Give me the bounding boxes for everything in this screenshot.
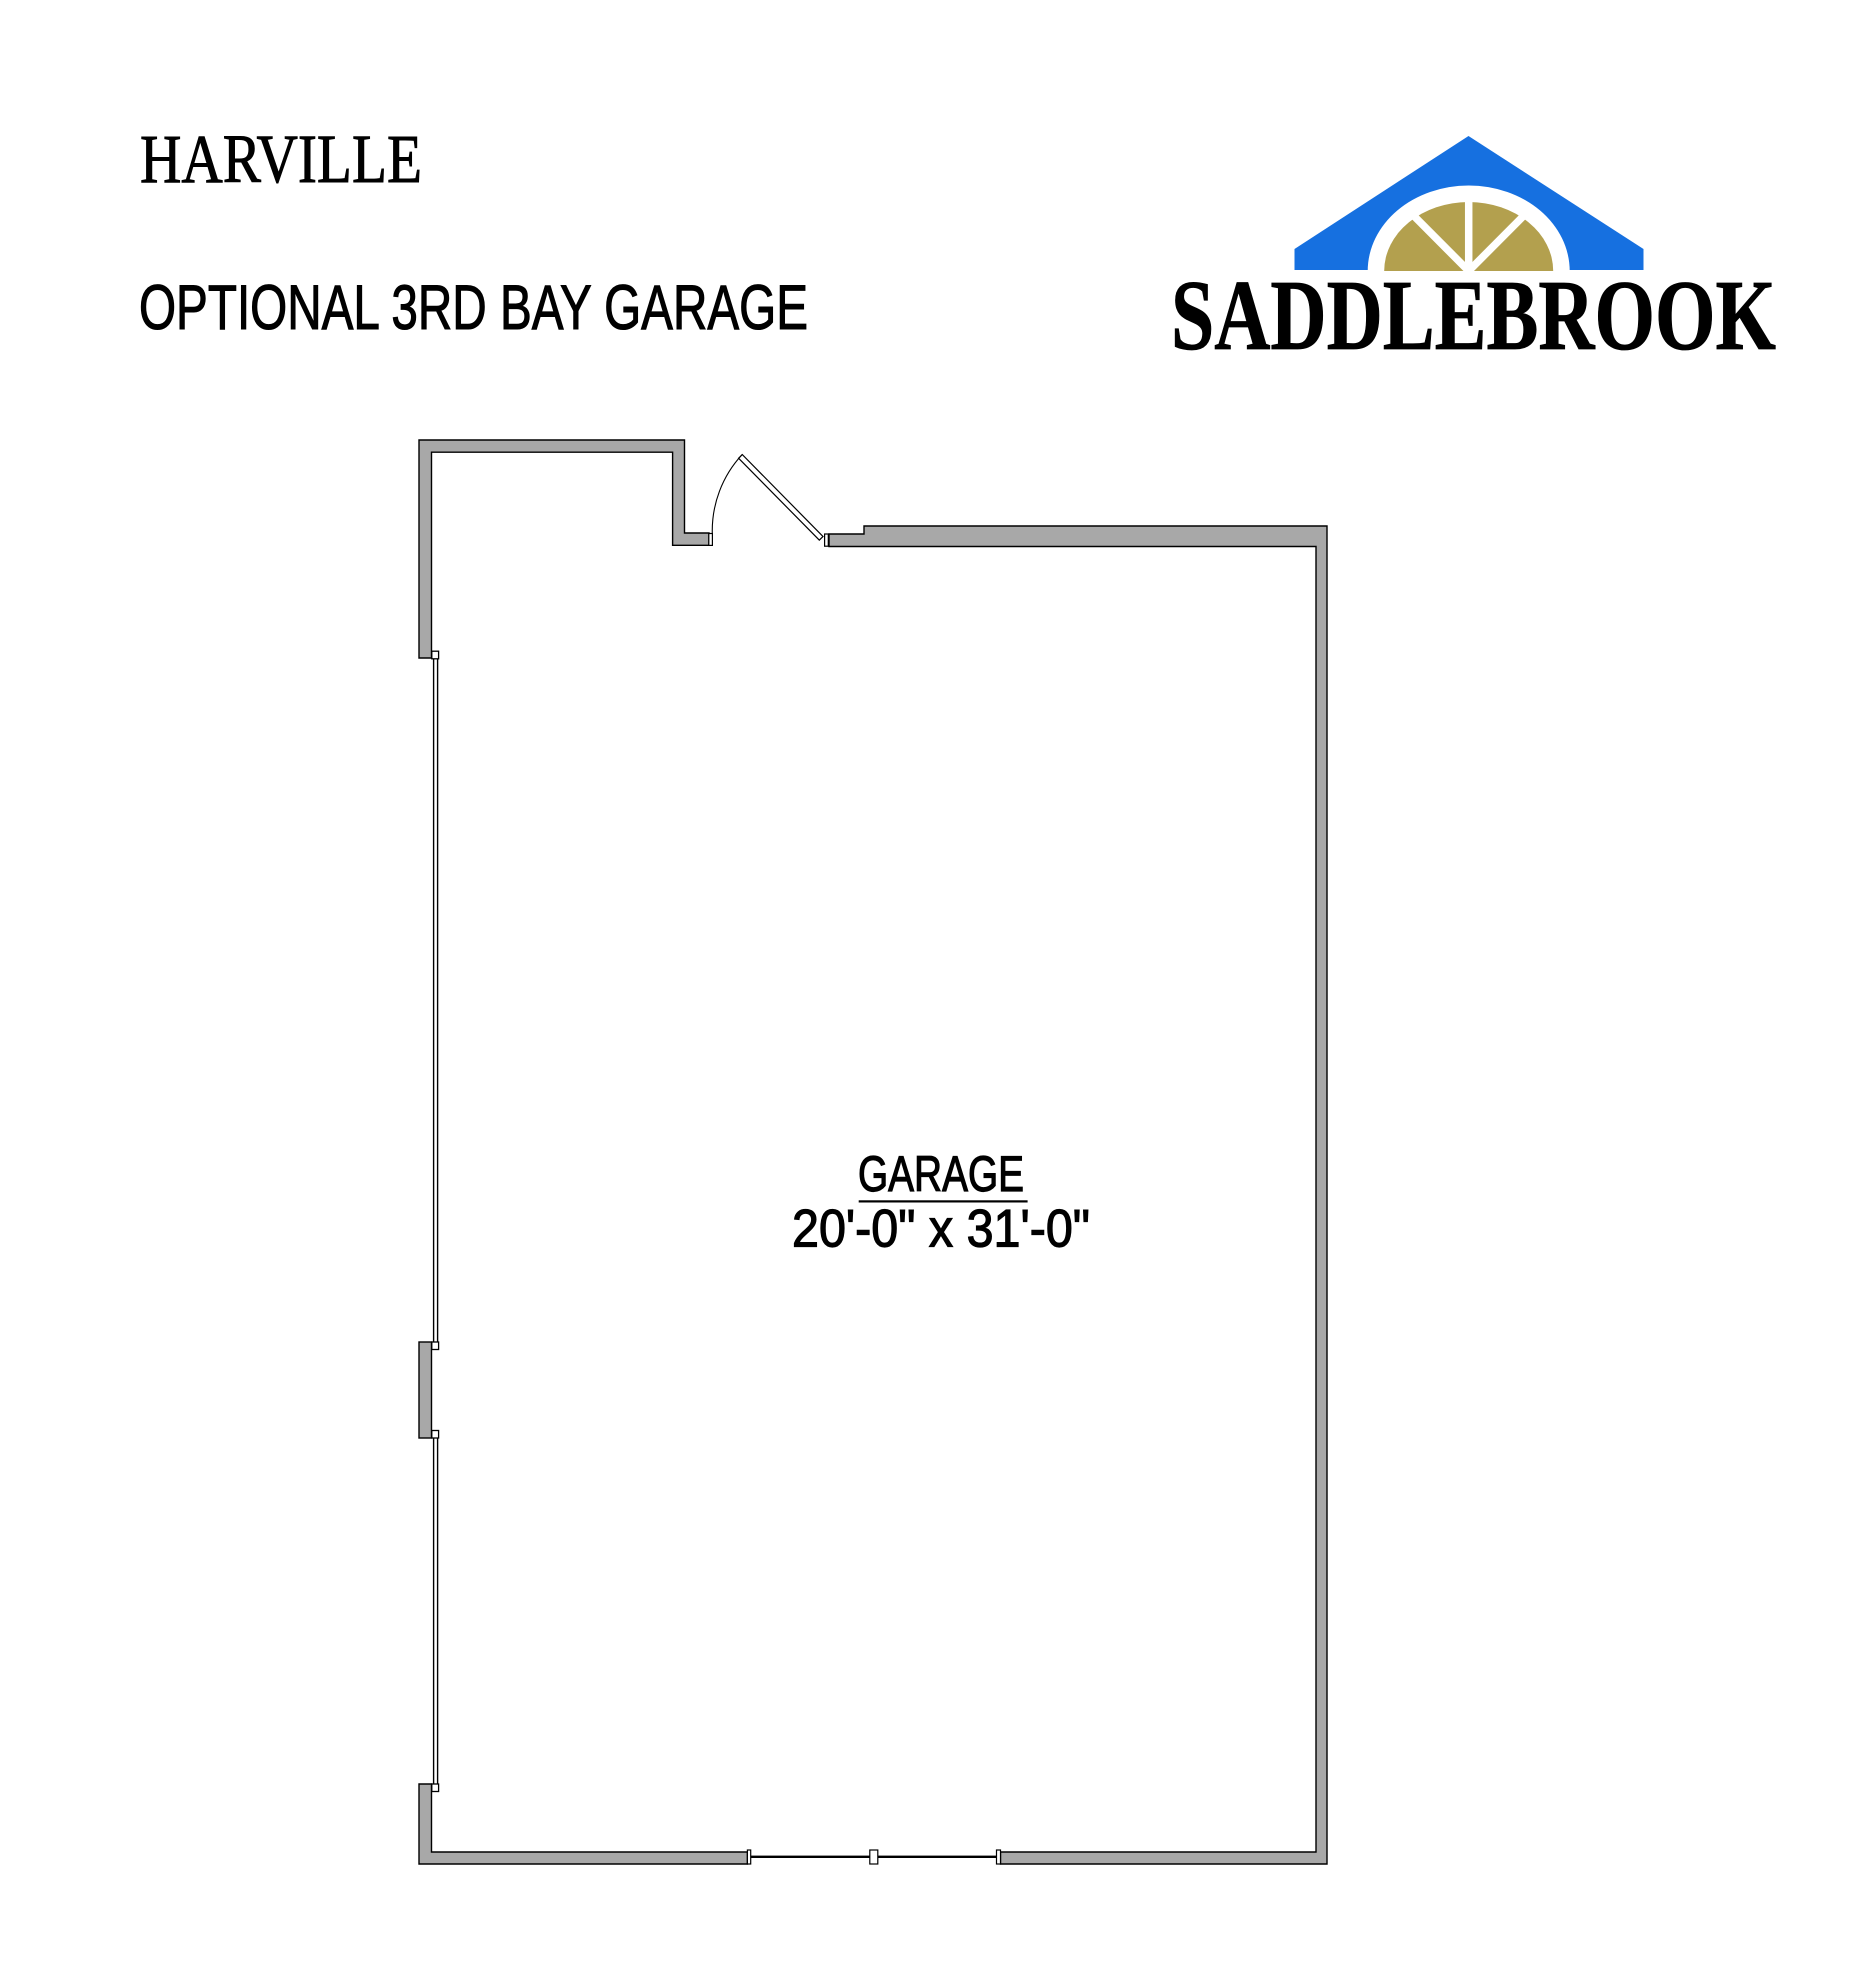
svg-text:OPTIONAL 3RD BAY GARAGE: OPTIONAL 3RD BAY GARAGE <box>139 273 808 343</box>
svg-text:20'-0" x 31'-0": 20'-0" x 31'-0" <box>792 1200 1090 1259</box>
svg-text:SADDLEBROOK: SADDLEBROOK <box>1171 259 1776 371</box>
svg-text:GARAGE: GARAGE <box>858 1146 1024 1202</box>
svg-text:HARVILLE: HARVILLE <box>140 121 422 197</box>
